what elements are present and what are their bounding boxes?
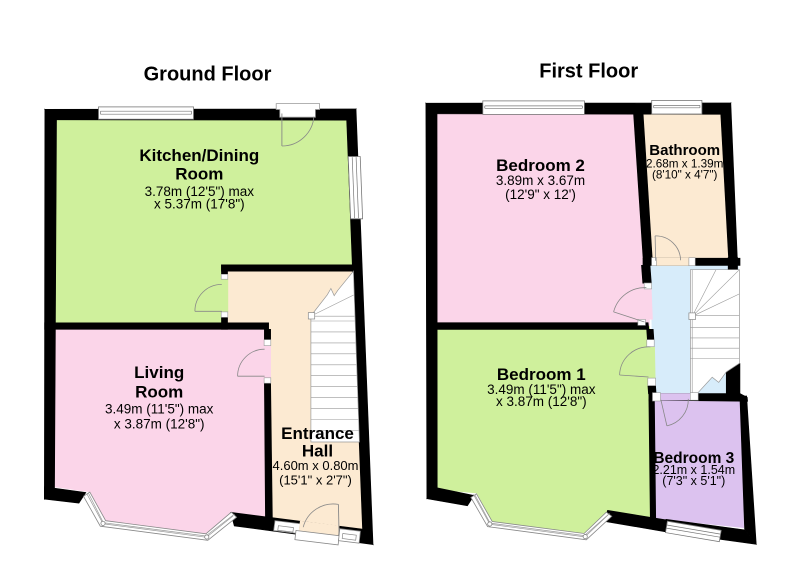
svg-text:(7'3" x 5'1"): (7'3" x 5'1") bbox=[662, 474, 725, 488]
svg-text:Living: Living bbox=[134, 363, 184, 382]
svg-text:Bathroom: Bathroom bbox=[649, 142, 720, 159]
svg-text:Ground Floor: Ground Floor bbox=[144, 63, 272, 85]
svg-text:Room: Room bbox=[135, 382, 183, 401]
svg-text:(8'10" x 4'7"): (8'10" x 4'7") bbox=[652, 168, 717, 181]
svg-text:x 3.87m (12'8"): x 3.87m (12'8") bbox=[496, 394, 587, 409]
svg-text:(15'1" x 2'7"): (15'1" x 2'7") bbox=[279, 472, 352, 487]
svg-text:3.49m (11'5") max: 3.49m (11'5") max bbox=[105, 401, 214, 416]
svg-text:Room: Room bbox=[175, 164, 223, 183]
svg-text:Entrance: Entrance bbox=[281, 424, 354, 443]
svg-text:First Floor: First Floor bbox=[539, 61, 638, 83]
svg-text:3.89m x 3.67m: 3.89m x 3.67m bbox=[496, 173, 585, 188]
svg-text:x 5.37m (17'8"): x 5.37m (17'8") bbox=[154, 197, 245, 212]
svg-text:(12'9" x 12'): (12'9" x 12') bbox=[505, 187, 576, 202]
svg-text:x 3.87m (12'8"): x 3.87m (12'8") bbox=[114, 416, 205, 431]
svg-text:4.60m x 0.80m: 4.60m x 0.80m bbox=[273, 458, 359, 473]
svg-text:Kitchen/Dining: Kitchen/Dining bbox=[139, 146, 259, 165]
